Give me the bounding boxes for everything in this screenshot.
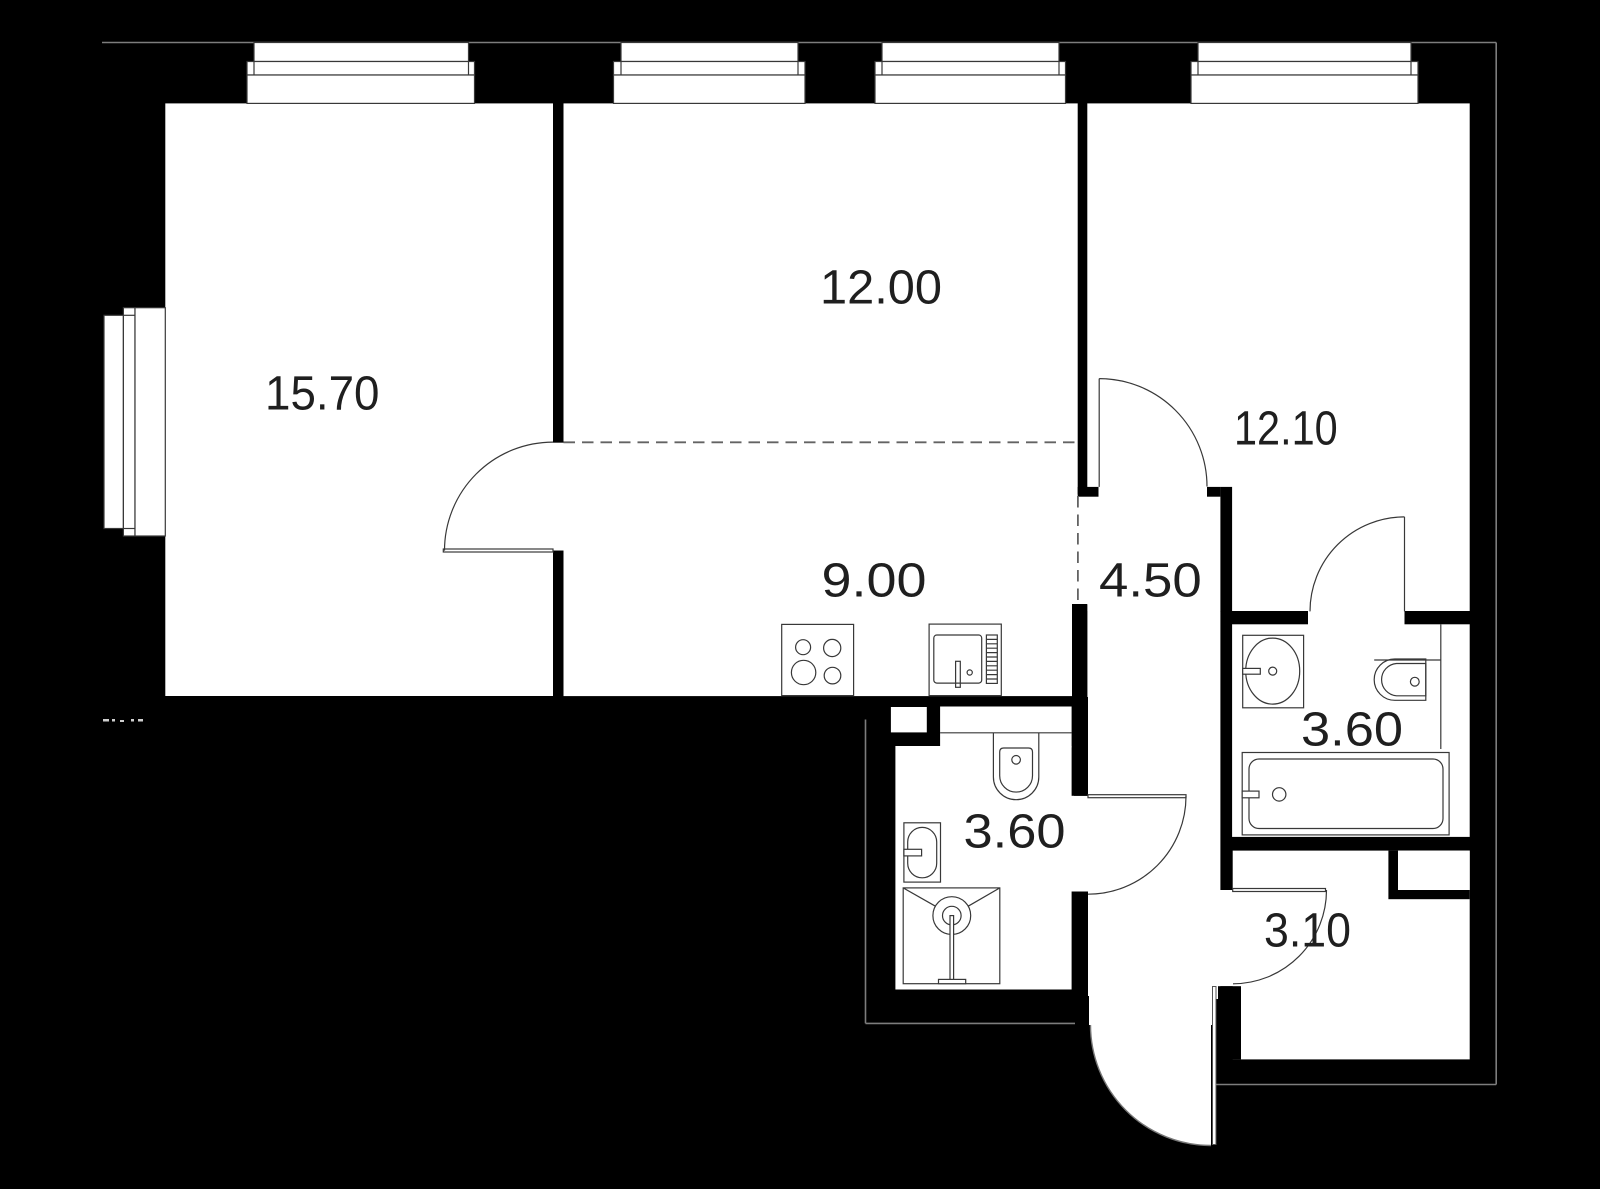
svg-text:3.10: 3.10 [1264,904,1351,958]
svg-text:4.50: 4.50 [1099,554,1202,608]
svg-text:15.70: 15.70 [265,367,380,421]
svg-text:12.00: 12.00 [820,261,942,315]
svg-text:3.60: 3.60 [1301,703,1403,757]
svg-text:12.10: 12.10 [1234,402,1338,456]
svg-text:3.60: 3.60 [964,805,1066,859]
svg-text:9.00: 9.00 [822,554,927,608]
